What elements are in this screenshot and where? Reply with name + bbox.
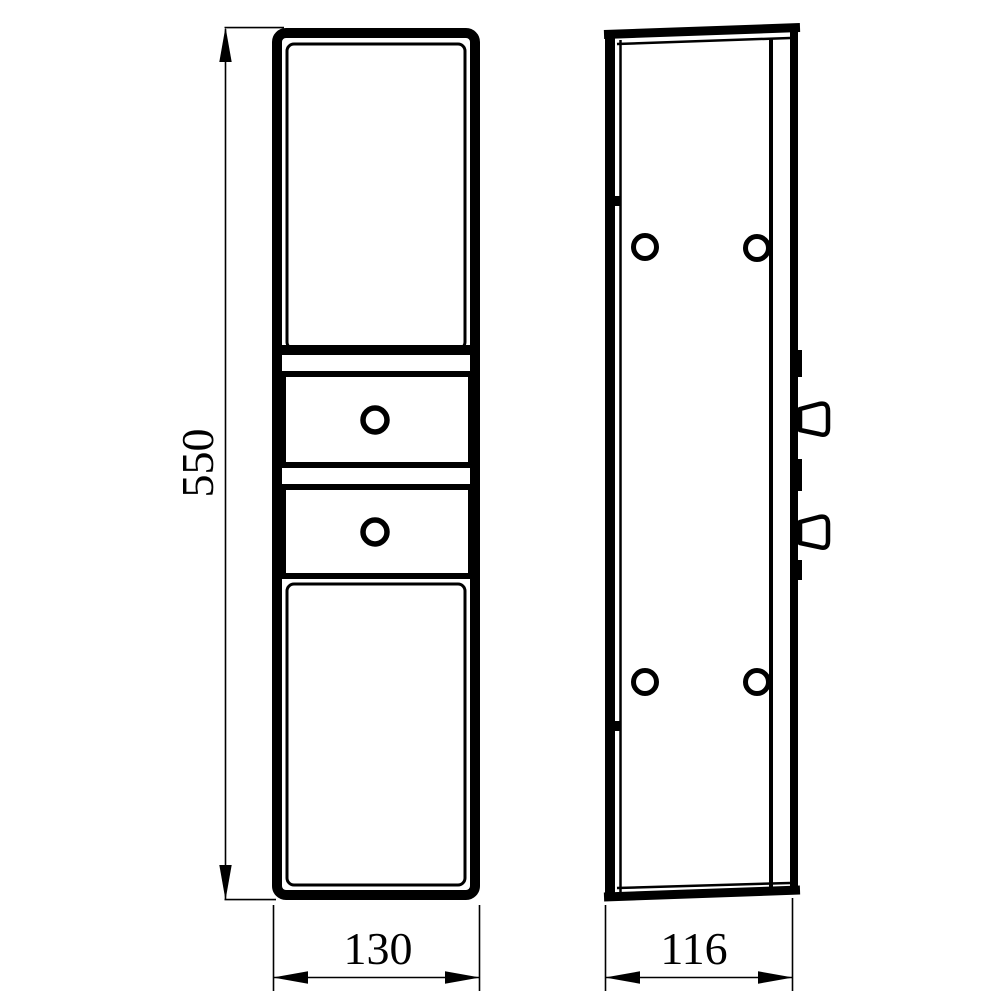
- drawer-2-knob-icon: [363, 520, 387, 544]
- side-view: [604, 26, 828, 902]
- mount-hole-top-right-icon: [746, 237, 769, 260]
- side-rail-edge-bottom: [795, 560, 802, 580]
- dimension-height: 550: [172, 27, 284, 900]
- side-rail-edge-middle: [795, 459, 802, 491]
- height-dimension-label: 550: [172, 429, 223, 498]
- drawer-1-knob-icon: [363, 408, 387, 432]
- depth-arrow-left-icon: [605, 971, 640, 983]
- height-arrow-up-icon: [219, 27, 231, 62]
- mount-hole-top-left-icon: [634, 236, 657, 259]
- side-hinge-mark-top: [608, 196, 621, 206]
- side-body: [610, 26, 795, 902]
- front-view: [273, 33, 479, 895]
- mount-hole-bottom-left-icon: [634, 671, 657, 694]
- width-arrow-left-icon: [273, 971, 308, 983]
- cabinet-technical-drawing: 550 130 116: [0, 0, 1000, 1000]
- drawing-canvas: 550 130 116: [0, 0, 1000, 1000]
- side-knob-2-icon: [800, 517, 828, 548]
- height-arrow-down-icon: [219, 865, 231, 900]
- side-hinge-mark-bottom: [608, 721, 621, 731]
- width-dimension-label: 130: [344, 923, 413, 974]
- side-rail-edge-top: [795, 350, 802, 377]
- mount-hole-bottom-right-icon: [746, 671, 769, 694]
- width-arrow-right-icon: [445, 971, 480, 983]
- dimension-depth: 116: [605, 898, 793, 991]
- depth-arrow-right-icon: [758, 971, 793, 983]
- depth-dimension-label: 116: [660, 923, 727, 974]
- dimension-width: 130: [273, 905, 480, 991]
- side-knob-1-icon: [800, 404, 828, 435]
